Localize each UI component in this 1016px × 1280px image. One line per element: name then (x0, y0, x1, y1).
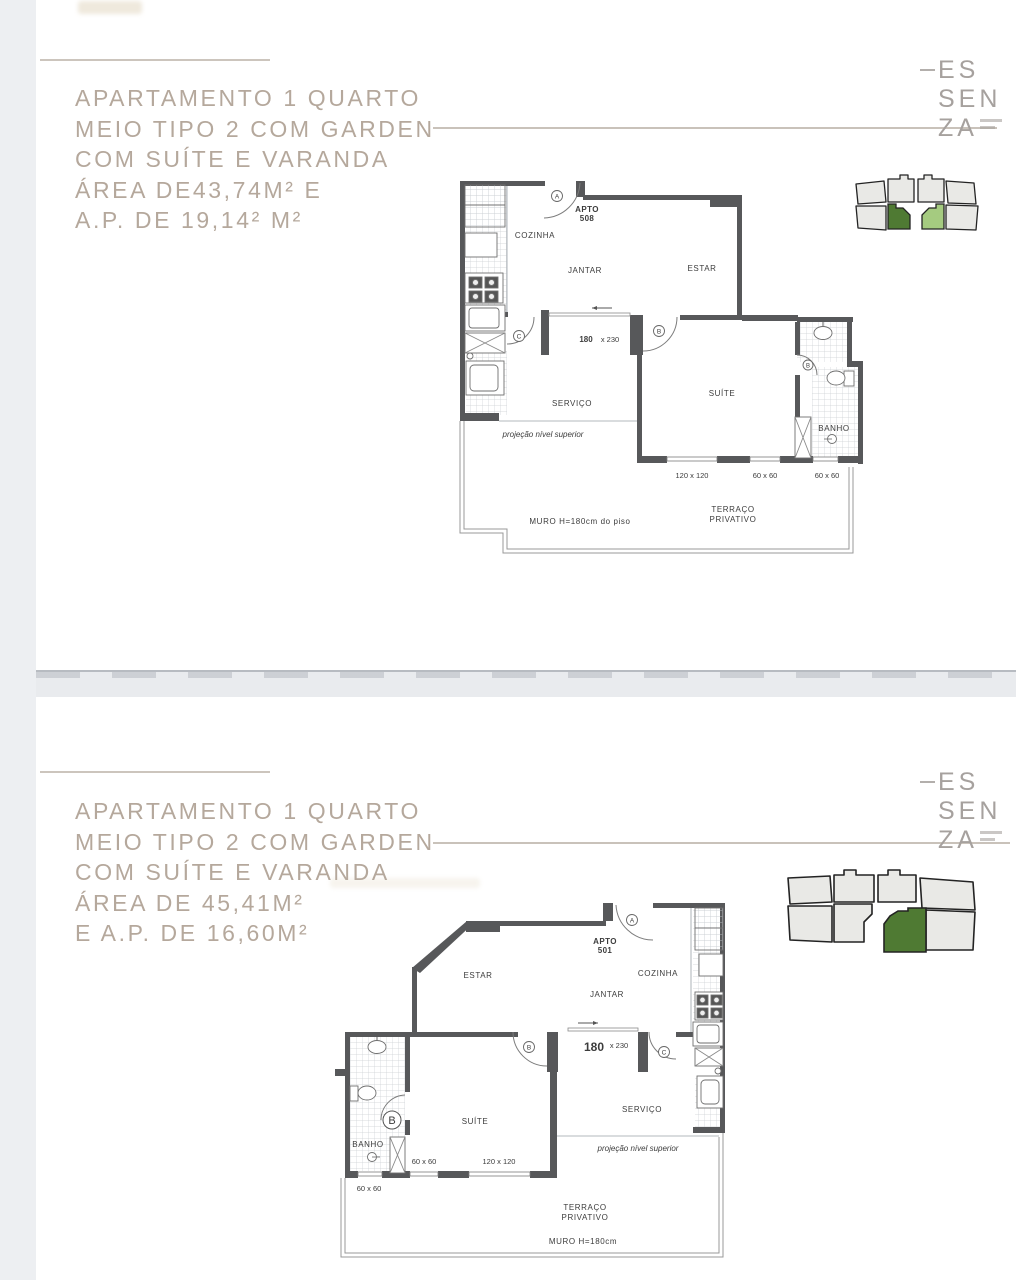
dim-window-120: 120 x 120 (483, 1157, 516, 1166)
key-unit-highlight-dark-green (888, 204, 910, 229)
dim-door-height: x 230 (610, 1041, 628, 1050)
svg-text:A: A (630, 918, 635, 925)
logo-dash (920, 69, 935, 71)
logo-dash (920, 781, 935, 783)
title-line: APARTAMENTO 1 QUARTO (75, 83, 435, 114)
svg-text:B: B (657, 329, 661, 336)
kitchen-fixtures (465, 185, 505, 395)
room-jantar: JANTAR (590, 990, 624, 999)
dim-door-height: x 230 (601, 335, 619, 344)
room-suite: SUÍTE (462, 1117, 489, 1126)
title-line: A.P. DE 19,14² M² (75, 205, 435, 236)
logo-row: SEN (938, 797, 1001, 826)
logo-small-line (980, 126, 995, 129)
door-label-bath: B (803, 360, 813, 370)
title-line: APARTAMENTO 1 QUARTO (75, 796, 435, 827)
dim-window-60: 60 x 60 (357, 1184, 382, 1193)
title-line: MEIO TIPO 2 COM GARDEN (75, 827, 435, 858)
svg-text:C: C (662, 1050, 667, 1057)
svg-text:A: A (555, 194, 560, 201)
room-cozinha: COZINHA (638, 969, 678, 978)
room-estar: ESTAR (687, 264, 716, 273)
door-label-c: C (659, 1047, 670, 1058)
title-line: MEIO TIPO 2 COM GARDEN (75, 114, 435, 145)
essenza-logo: ES SEN ZA (938, 768, 1001, 855)
logo-row: ES (938, 768, 1001, 797)
key-unit-highlight-light-green (922, 204, 944, 229)
room-suite: SUÍTE (709, 389, 736, 398)
room-banho: BANHO (352, 1140, 383, 1149)
terraco-line2: PRIVATIVO (710, 515, 757, 524)
door-label-c: C (514, 331, 525, 342)
floor-plan-apto-501: A C B B APTO 501 ESTAR COZINHA JANTAR SE… (320, 880, 740, 1280)
svg-text:B: B (388, 1115, 395, 1127)
title-dash-line (433, 127, 997, 129)
dim-window-60: 60 x 60 (753, 471, 778, 480)
logo-row: SEN (938, 85, 1001, 114)
dim-window-60: 60 x 60 (412, 1157, 437, 1166)
door-label-a: A (552, 191, 563, 202)
door-label-b: B (524, 1042, 535, 1053)
door-label-a: A (627, 915, 638, 926)
logo-row: ES (938, 56, 1001, 85)
note-projecao: projeção nível superior (502, 430, 584, 439)
brochure-page: APARTAMENTO 1 QUARTO MEIO TIPO 2 COM GAR… (0, 0, 1016, 1280)
dim-window-60: 60 x 60 (815, 471, 840, 480)
room-cozinha: COZINHA (515, 231, 555, 240)
panel-separator (36, 670, 1016, 699)
terrace-outline (460, 421, 853, 553)
note-muro: MURO H=180cm (549, 1237, 617, 1246)
logo-small-line (980, 831, 1002, 834)
room-servico: SERVIÇO (622, 1105, 662, 1114)
floor-plan-apto-508: A C B B APTO 508 COZINHA JANTAR ESTAR SE… (440, 165, 880, 575)
note-muro: MURO H=180cm do piso (529, 517, 630, 526)
kitchen-fixtures (693, 908, 723, 1108)
note-projecao: projeção nível superior (597, 1144, 679, 1153)
sliding-door (568, 1021, 638, 1031)
title-line: COM SUÍTE E VARANDA (75, 144, 435, 175)
door-arcs (507, 183, 817, 375)
apto-label: APTO (593, 937, 617, 946)
svg-text:B: B (806, 364, 810, 370)
dim-door-width: 180 (584, 1040, 604, 1054)
apartment-title: APARTAMENTO 1 QUARTO MEIO TIPO 2 COM GAR… (75, 83, 435, 236)
sliding-door (549, 306, 630, 316)
key-unit-highlight-dark-green (884, 908, 926, 952)
apto-number: 508 (580, 214, 595, 223)
room-banho: BANHO (818, 424, 849, 433)
separator-watermark (36, 672, 1016, 678)
svg-text:C: C (517, 334, 522, 341)
door-arcs (381, 905, 676, 1120)
door-label-banho: B (383, 1111, 401, 1129)
room-servico: SERVIÇO (552, 399, 592, 408)
title-rule (40, 59, 270, 61)
title-line: ÁREA DE43,74M² E (75, 175, 435, 206)
logo-small-line (980, 838, 995, 841)
essenza-logo: ES SEN ZA (938, 56, 1001, 143)
thin-lines (499, 183, 637, 421)
svg-text:B: B (527, 1045, 531, 1052)
dim-door-width: 180 (579, 335, 593, 344)
dim-window-120: 120 x 120 (676, 471, 709, 480)
title-dash-line (433, 842, 1010, 844)
terraco-line2: PRIVATIVO (562, 1213, 609, 1222)
title-rule (40, 771, 270, 773)
door-label-b: B (654, 326, 665, 337)
cutoff-watermark (78, 1, 142, 14)
terraco-line1: TERRAÇO (711, 505, 754, 514)
logo-small-line (980, 119, 1002, 122)
terraco-line1: TERRAÇO (563, 1203, 606, 1212)
apto-number: 501 (598, 946, 613, 955)
apto-label: APTO (575, 205, 599, 214)
key-units (788, 870, 975, 950)
room-estar: ESTAR (463, 971, 492, 980)
building-key-plan (768, 862, 978, 962)
room-jantar: JANTAR (568, 266, 602, 275)
